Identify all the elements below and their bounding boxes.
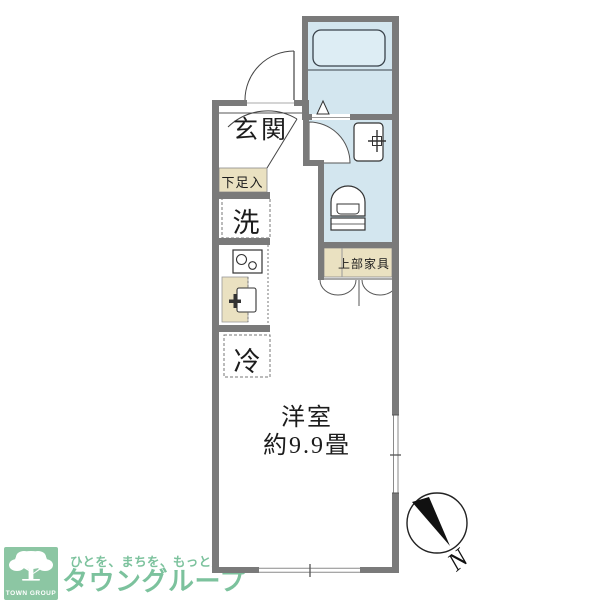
fridge-space-box: [224, 335, 270, 377]
toilet: [331, 186, 365, 230]
shoe-storage-box: [219, 168, 267, 192]
floorplan-page: TOWN GROUP ひとを、まちを、もっと豊かに。 タウングループ: [0, 0, 600, 600]
entrance-door: [245, 51, 294, 103]
bathtub: [308, 30, 392, 70]
floorplan-drawing: N: [0, 0, 600, 600]
compass: N: [407, 493, 475, 577]
washbasin: [354, 123, 386, 161]
washer-space-box: [222, 197, 270, 238]
